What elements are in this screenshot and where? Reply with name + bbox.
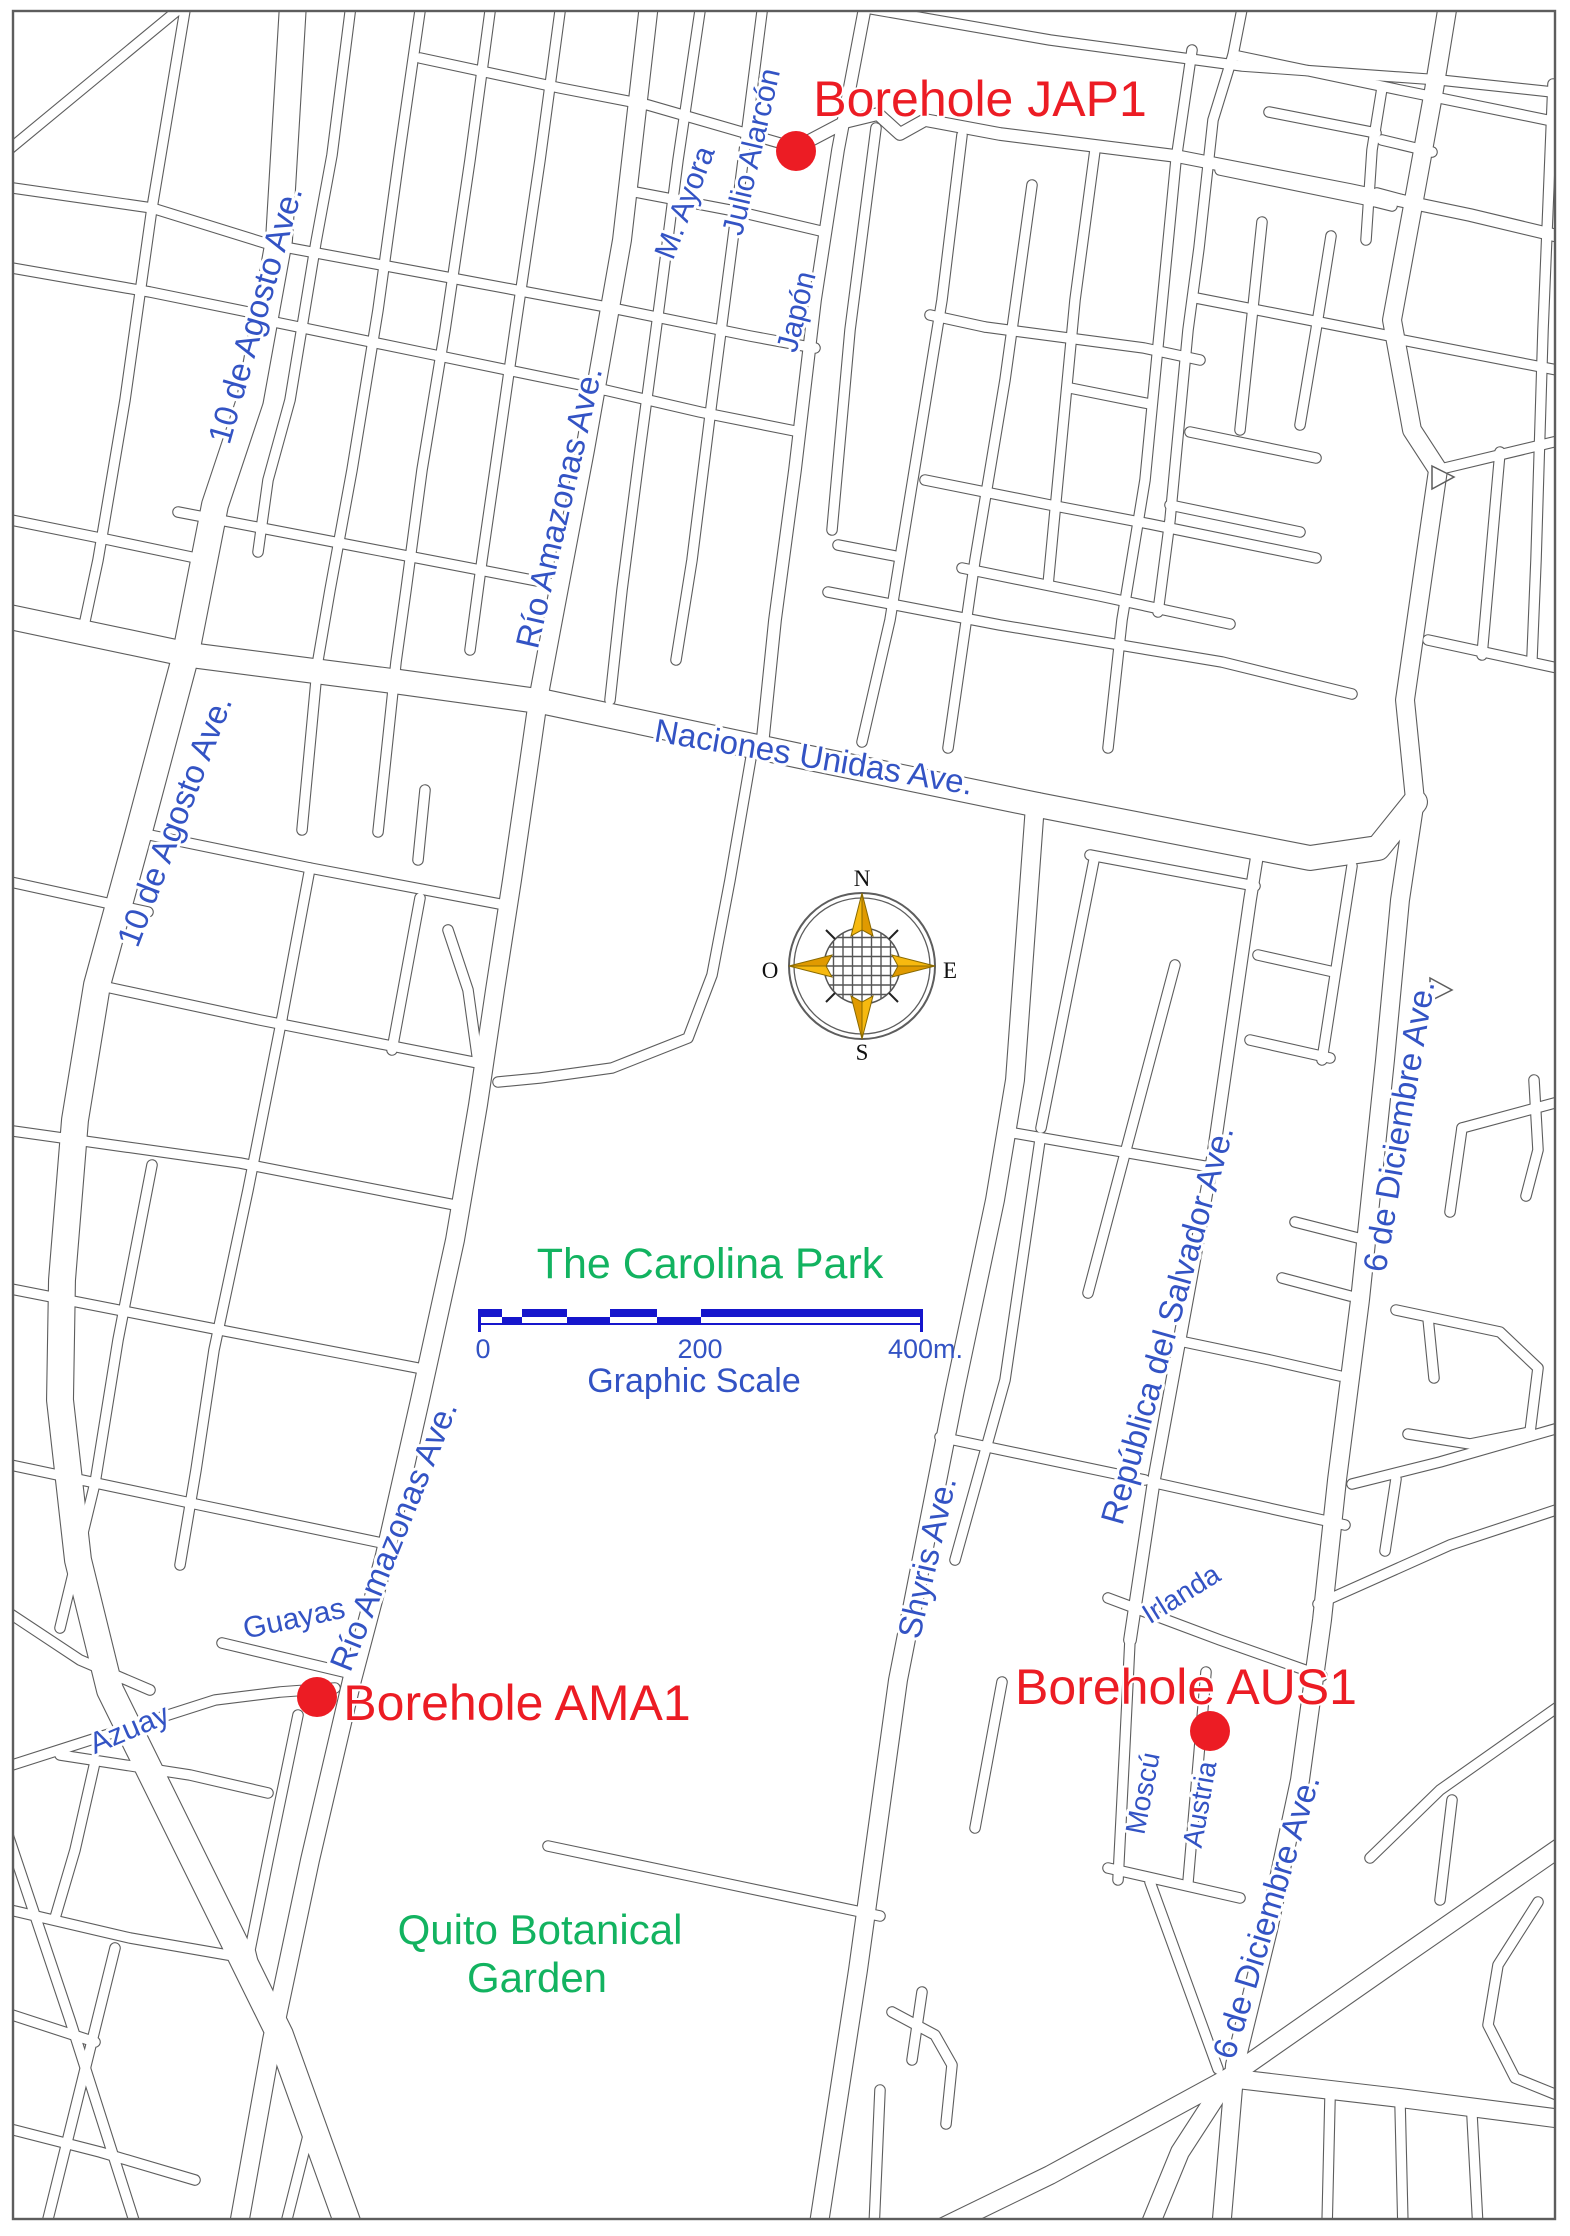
svg-text:Borehole AMA1: Borehole AMA1 [343, 1675, 690, 1731]
svg-text:Borehole AUS1: Borehole AUS1 [1015, 1659, 1357, 1715]
svg-text:S: S [856, 1040, 869, 1065]
svg-text:Borehole JAP1: Borehole JAP1 [813, 71, 1147, 127]
svg-text:200: 200 [677, 1334, 722, 1364]
svg-text:E: E [943, 958, 957, 983]
svg-text:400m.: 400m. [888, 1334, 963, 1364]
svg-text:0: 0 [475, 1334, 490, 1364]
svg-text:Graphic Scale: Graphic Scale [587, 1362, 801, 1400]
svg-text:Quito Botanical: Quito Botanical [398, 1906, 683, 1953]
svg-text:O: O [762, 958, 779, 983]
svg-text:N: N [854, 866, 871, 891]
svg-text:Garden: Garden [467, 1954, 607, 2001]
svg-text:The Carolina Park: The Carolina Park [537, 1240, 884, 1288]
